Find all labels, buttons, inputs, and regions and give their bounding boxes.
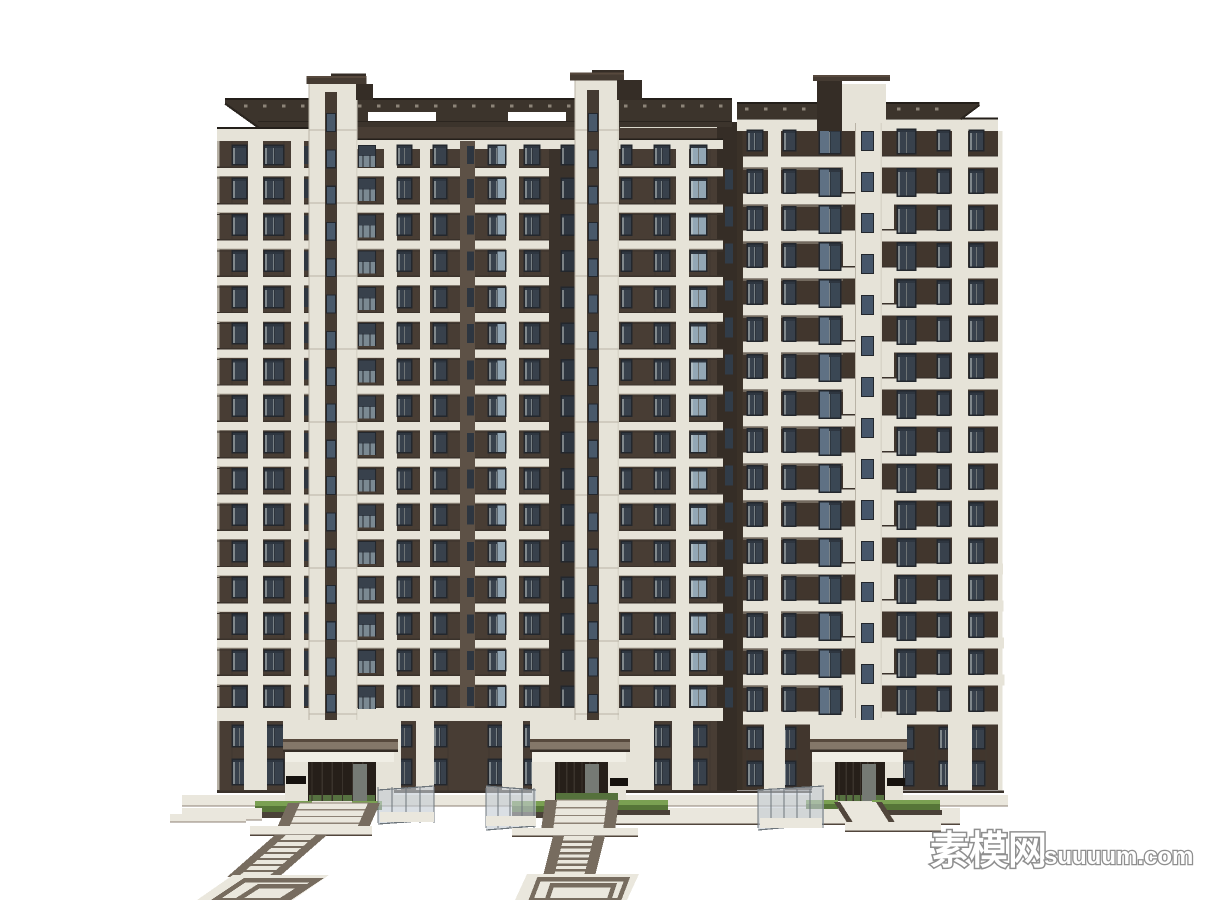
svg-text:suuuum.com: suuuum.com xyxy=(1044,843,1193,870)
svg-text:素模网: 素模网 xyxy=(930,830,1047,873)
